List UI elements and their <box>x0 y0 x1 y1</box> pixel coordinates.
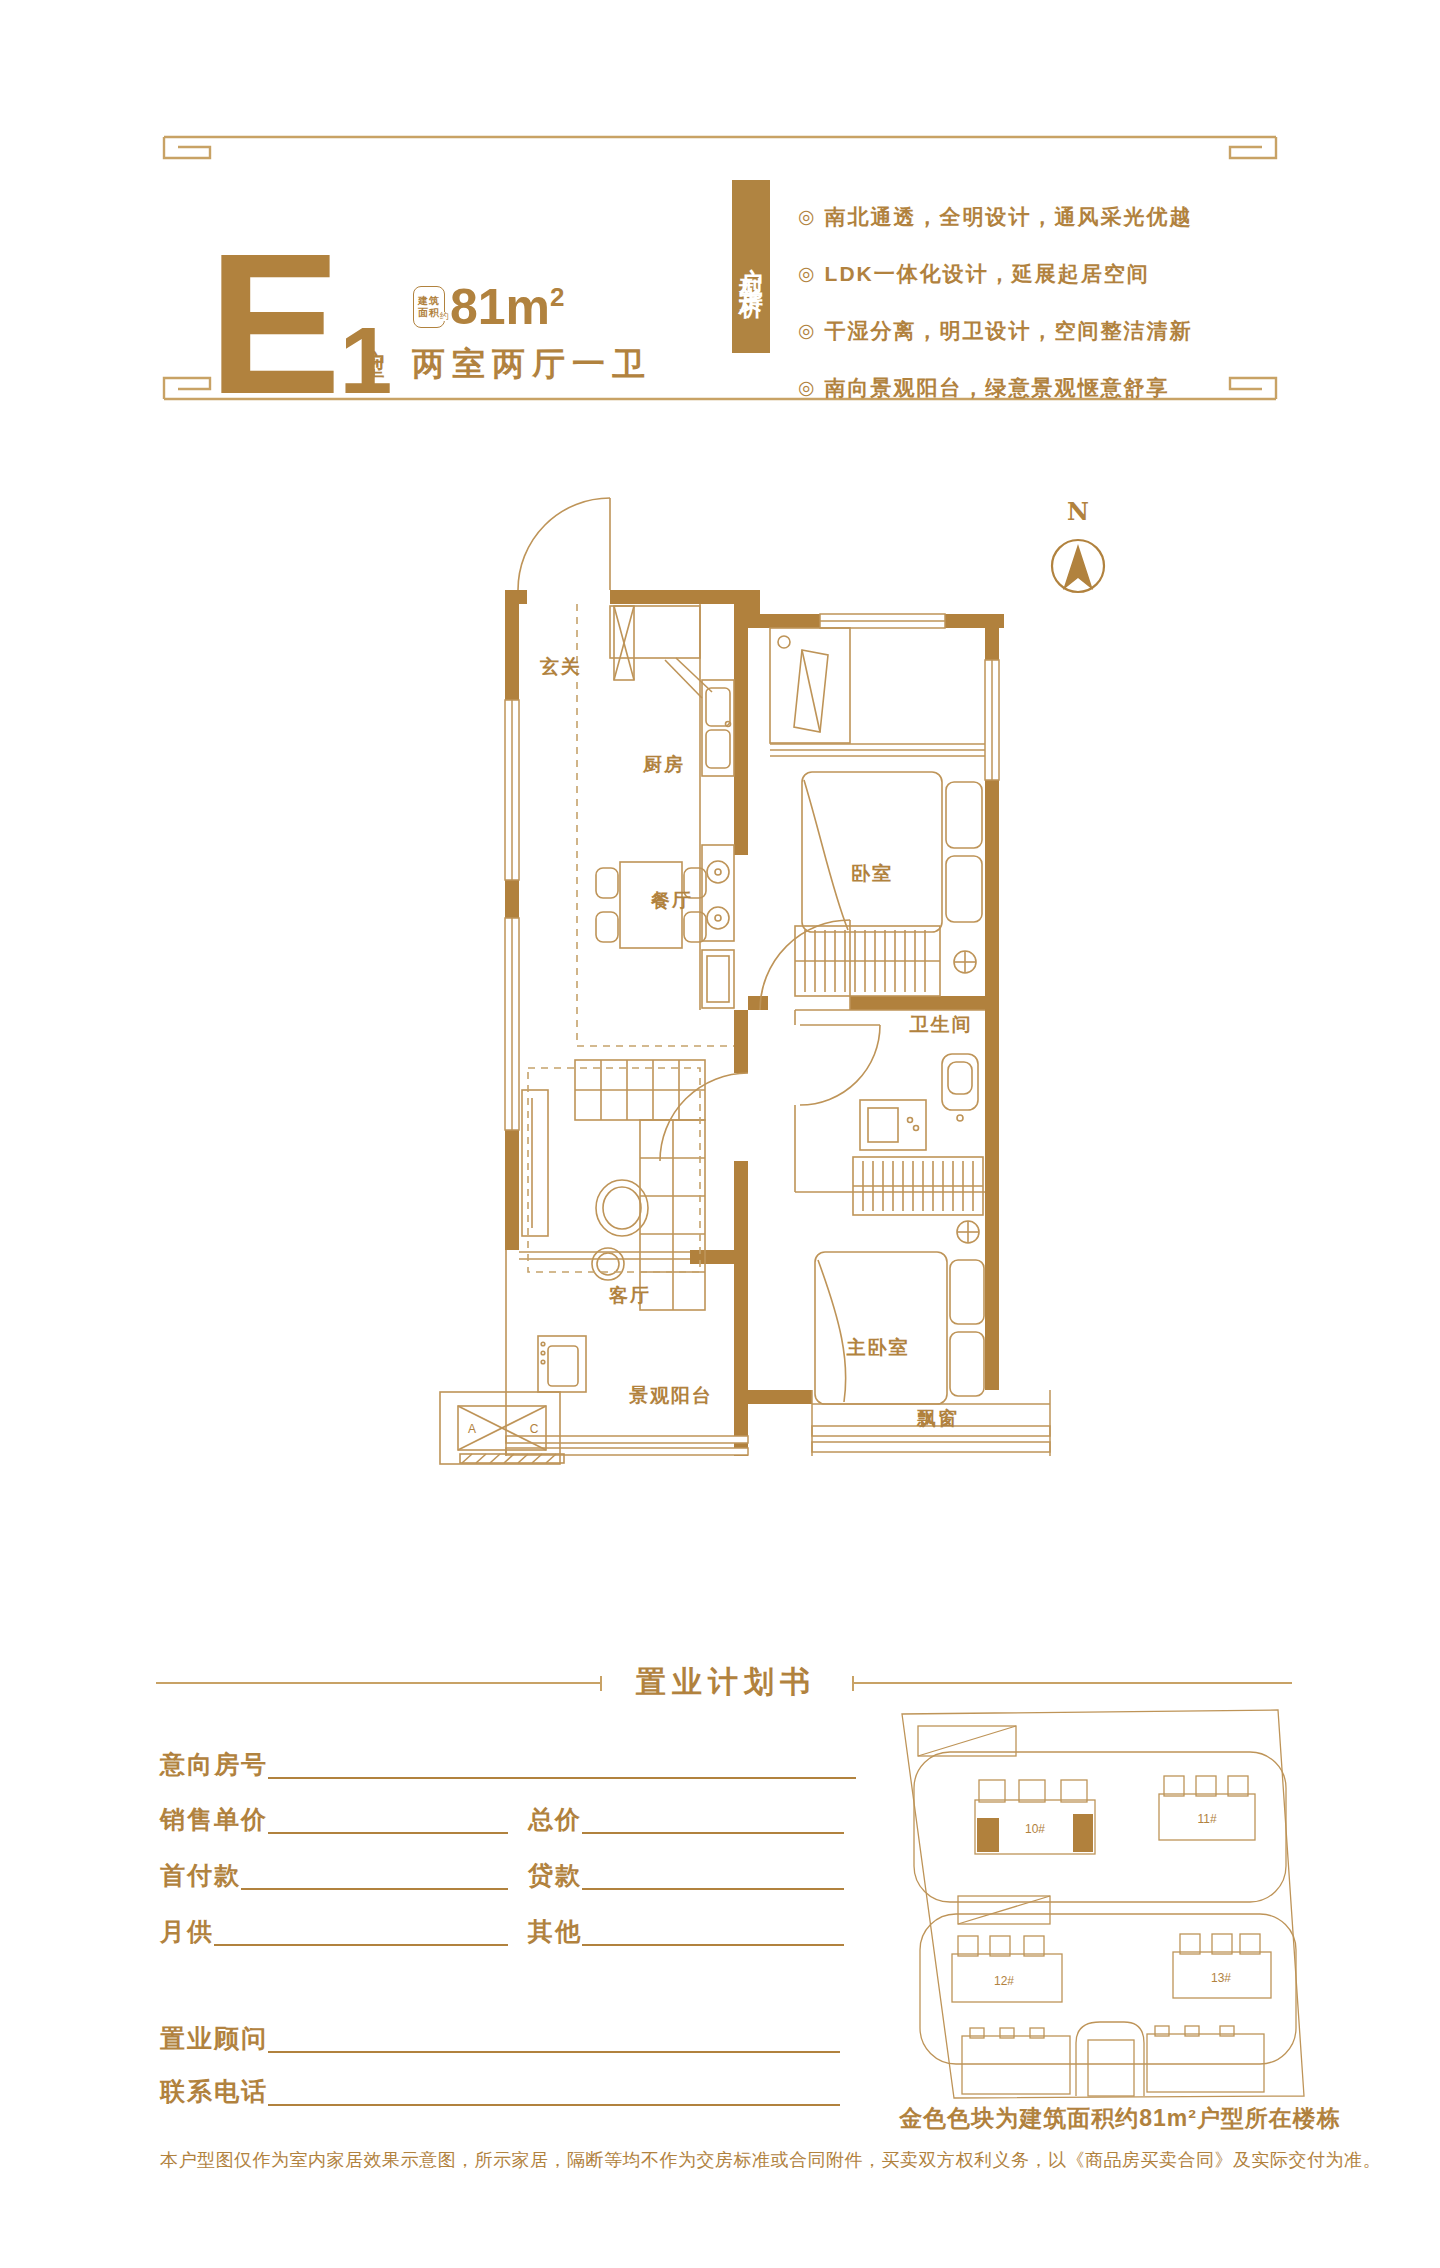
area-stamp: 建筑 面积 约 <box>413 286 445 328</box>
area-stamp-line2: 面积 <box>418 307 440 319</box>
feature-item: ◎ LDK一体化设计，延展起居空间 <box>798 245 1193 302</box>
room-label-bath: 卫生间 <box>909 1014 973 1035</box>
form-row-unit-price: 销售单价 <box>160 1800 508 1834</box>
area-value: 81m2 <box>450 282 565 332</box>
floor-plan-fixtures <box>440 498 985 1464</box>
layout-description: 两室两厅一卫 <box>412 342 652 387</box>
entrance-gate <box>1076 2022 1144 2096</box>
feature-text: 干湿分离，明卫设计，空间整洁清新 <box>825 317 1193 345</box>
feature-text: 南向景观阳台，绿意景观惬意舒享 <box>825 374 1170 402</box>
form-row-room-no: 意向房号 <box>160 1745 856 1779</box>
unit-code-letter: E <box>208 246 335 402</box>
ramp-2 <box>958 1896 1050 1924</box>
field-label-consultant: 置业顾问 <box>160 2024 268 2053</box>
north-label: N <box>1067 497 1089 526</box>
room-label-balcony: 景观阳台 <box>628 1385 713 1406</box>
area-stamp-line1: 建筑 <box>418 295 440 307</box>
room-label-living: 客厅 <box>608 1285 651 1306</box>
section-badge-text: 户型赏析 <box>735 249 767 285</box>
room-label-master: 主卧室 <box>846 1337 910 1358</box>
building-south-left <box>962 2028 1070 2094</box>
feature-text: 南北通透，全明设计，通风采光优越 <box>825 203 1193 231</box>
form-row-loan: 贷款 <box>528 1856 844 1890</box>
feature-item: ◎ 南北通透，全明设计，通风采光优越 <box>798 188 1193 245</box>
section-badge: 户型赏析 <box>732 180 770 353</box>
feature-list: ◎ 南北通透，全明设计，通风采光优越 ◎ LDK一体化设计，延展起居空间 ◎ 干… <box>798 188 1193 416</box>
disclaimer-text: 本户型图仅作为室内家居效果示意图，所示家居，隔断等均不作为交房标准或合同附件，买… <box>160 2148 1380 2172</box>
plan-section-title: 置业计划书 <box>600 1662 852 1703</box>
building-12 <box>952 1936 1062 2002</box>
room-label-bedroom: 卧室 <box>851 863 893 884</box>
room-label-bay-window: 飘窗 <box>916 1408 959 1429</box>
ac-letter-a: A <box>468 1422 476 1436</box>
building-label-11: 11# <box>1197 1812 1216 1826</box>
field-label-down-payment: 首付款 <box>160 1861 241 1890</box>
ceiling-symbol <box>954 951 979 1243</box>
north-indicator: N <box>1052 497 1104 592</box>
field-label-other: 其他 <box>528 1917 582 1946</box>
building-13 <box>1173 1934 1271 1998</box>
field-label-phone: 联系电话 <box>160 2077 268 2106</box>
plan-title-left-line <box>156 1682 600 1684</box>
building-south-right <box>1147 2026 1264 2092</box>
site-plan: 10# 11# 12# 13# <box>880 1668 1400 2108</box>
form-row-down-payment: 首付款 <box>160 1856 508 1890</box>
floor-plan-windows <box>505 614 1050 1456</box>
highlight-block-right <box>1073 1814 1093 1852</box>
building-label-13: 13# <box>1211 1971 1231 1985</box>
field-label-loan: 贷款 <box>528 1861 582 1890</box>
building-label-10: 10# <box>1025 1822 1045 1836</box>
form-row-other: 其他 <box>528 1912 844 1946</box>
ac-letter-c: C <box>530 1422 539 1436</box>
north-arrow-icon <box>1063 544 1093 590</box>
feature-item: ◎ 南向景观阳台，绿意景观惬意舒享 <box>798 359 1193 416</box>
room-label-kitchen: 厨房 <box>642 754 685 775</box>
field-line-phone <box>268 2072 840 2106</box>
building-label-12: 12# <box>994 1974 1014 1988</box>
field-line-monthly <box>214 1912 508 1946</box>
closet-1 <box>795 926 940 996</box>
bullet-icon: ◎ <box>798 376 815 399</box>
area-value-text: 81m <box>450 279 550 335</box>
field-line-room-no <box>268 1745 856 1779</box>
flyer-page: E 1 户型 建筑 面积 约 81m2 两室两厅一卫 户型赏析 ◎ 南北通透，全… <box>0 0 1440 2268</box>
building-11 <box>1159 1776 1255 1840</box>
field-label-room-no: 意向房号 <box>160 1750 268 1779</box>
field-label-total-price: 总价 <box>528 1805 582 1834</box>
area-stamp-approx: 约 <box>440 312 449 321</box>
form-row-monthly: 月供 <box>160 1912 508 1946</box>
unit-type-label: 户型 <box>360 332 388 348</box>
field-line-down-payment <box>241 1856 508 1890</box>
room-label-entry: 玄关 <box>539 656 582 677</box>
bullet-icon: ◎ <box>798 262 815 285</box>
floor-plan: N 玄关 厨房 卧室 餐厅 卫生间 客厅 主卧室 景观阳台 飘窗 A C <box>430 460 1150 1520</box>
site-building-labels: 10# 11# 12# 13# <box>994 1812 1231 1988</box>
road-loop-north <box>914 1752 1286 1902</box>
building-10 <box>975 1780 1095 1854</box>
room-label-dining: 餐厅 <box>650 890 693 911</box>
bullet-icon: ◎ <box>798 205 815 228</box>
field-line-total-price <box>582 1800 844 1834</box>
feature-item: ◎ 干湿分离，明卫设计，空间整洁清新 <box>798 302 1193 359</box>
feature-text: LDK一体化设计，延展起居空间 <box>825 260 1150 288</box>
form-row-phone: 联系电话 <box>160 2072 840 2106</box>
bullet-icon: ◎ <box>798 319 815 342</box>
field-line-other <box>582 1912 844 1946</box>
form-row-total-price: 总价 <box>528 1800 844 1834</box>
field-line-loan <box>582 1856 844 1890</box>
form-row-consultant: 置业顾问 <box>160 2019 840 2053</box>
highlight-block-left <box>977 1818 999 1852</box>
site-plan-caption: 金色色块为建筑面积约81m²户型所在楼栋 <box>860 2103 1380 2134</box>
unit-code: E 1 <box>208 246 392 402</box>
field-label-monthly: 月供 <box>160 1917 214 1946</box>
ldk-dashed-boundary <box>528 604 734 1272</box>
field-line-unit-price <box>268 1800 508 1834</box>
field-line-consultant <box>268 2019 840 2053</box>
area-value-sup: 2 <box>550 282 564 312</box>
field-label-unit-price: 销售单价 <box>160 1805 268 1834</box>
closet-2 <box>853 1157 983 1215</box>
